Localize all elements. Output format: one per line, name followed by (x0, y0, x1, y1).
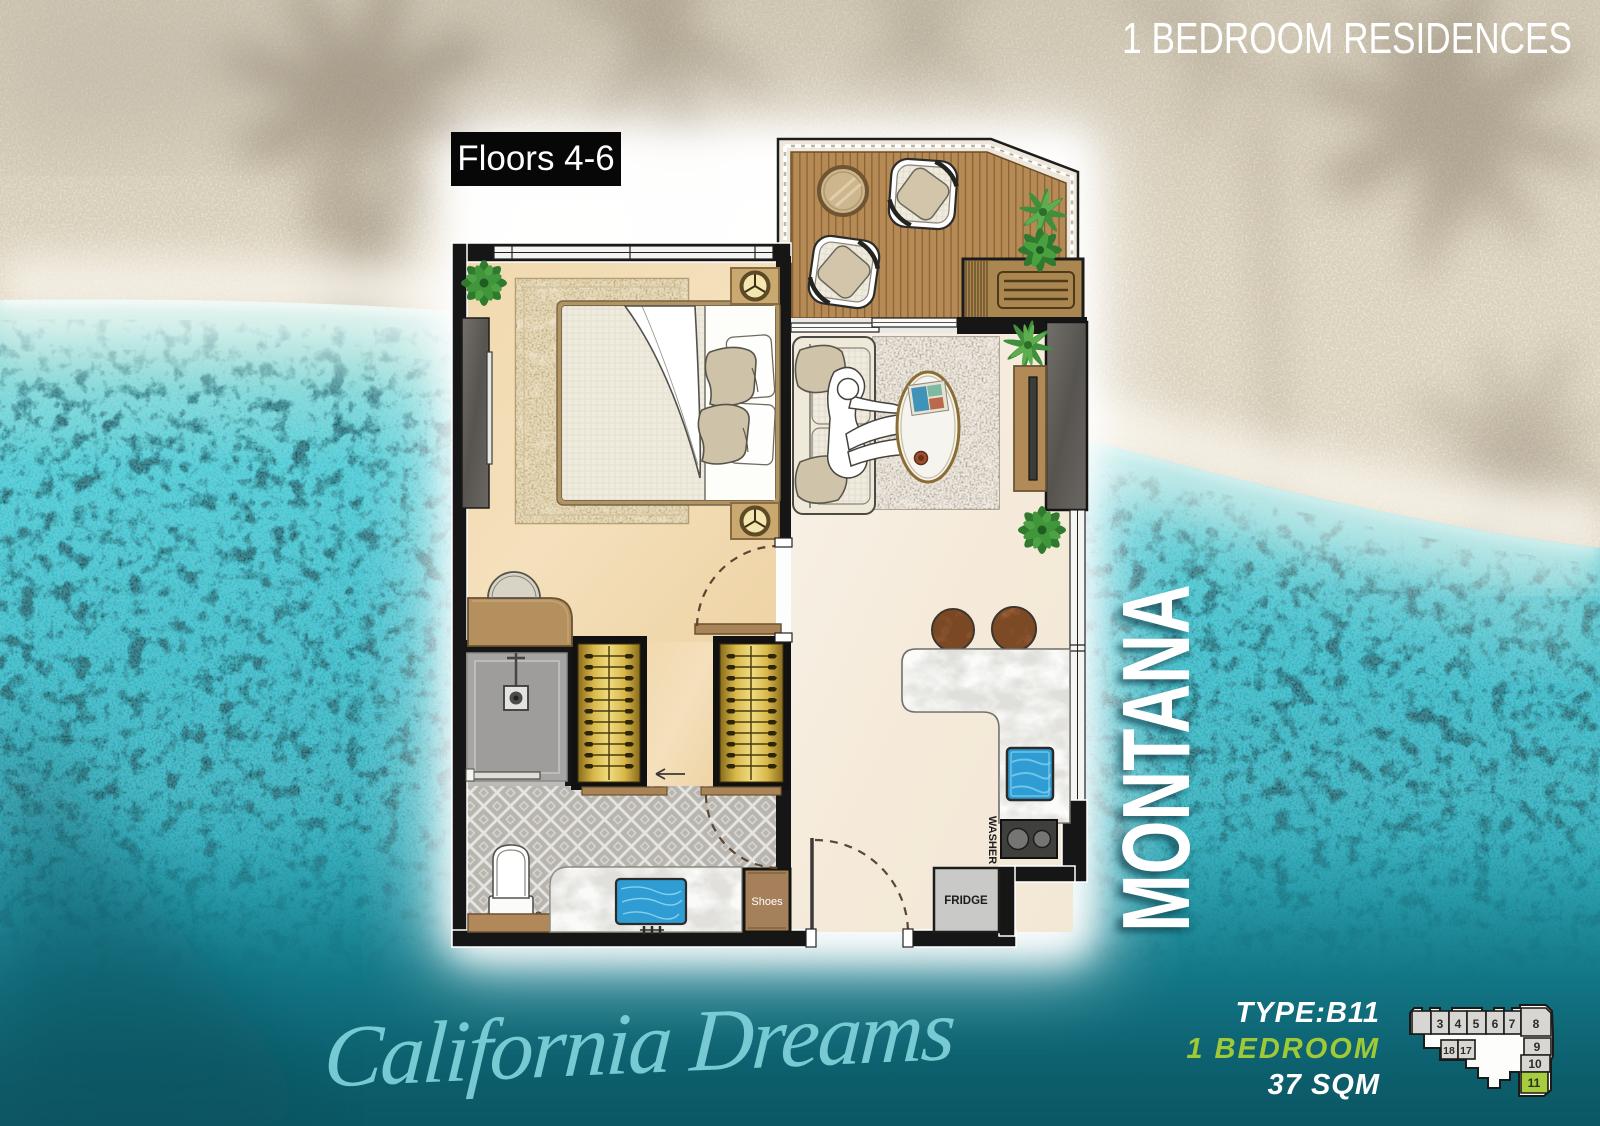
svg-text:17: 17 (1460, 1045, 1472, 1057)
svg-text:9: 9 (1534, 1040, 1541, 1054)
svg-text:8: 8 (1533, 1017, 1540, 1031)
svg-text:7: 7 (1509, 1017, 1516, 1031)
svg-text:3: 3 (1437, 1017, 1444, 1031)
svg-text:MONTANA: MONTANA (1103, 584, 1209, 931)
svg-text:4: 4 (1455, 1017, 1462, 1031)
svg-text:Shoes: Shoes (751, 896, 783, 908)
svg-text:18: 18 (1443, 1045, 1455, 1057)
svg-text:6: 6 (1492, 1017, 1499, 1031)
svg-text:5: 5 (1473, 1017, 1480, 1031)
svg-text:11: 11 (1528, 1076, 1541, 1090)
svg-text:FRIDGE: FRIDGE (944, 895, 988, 907)
svg-text:10: 10 (1528, 1057, 1542, 1071)
svg-text:WASHER: WASHER (986, 816, 998, 864)
